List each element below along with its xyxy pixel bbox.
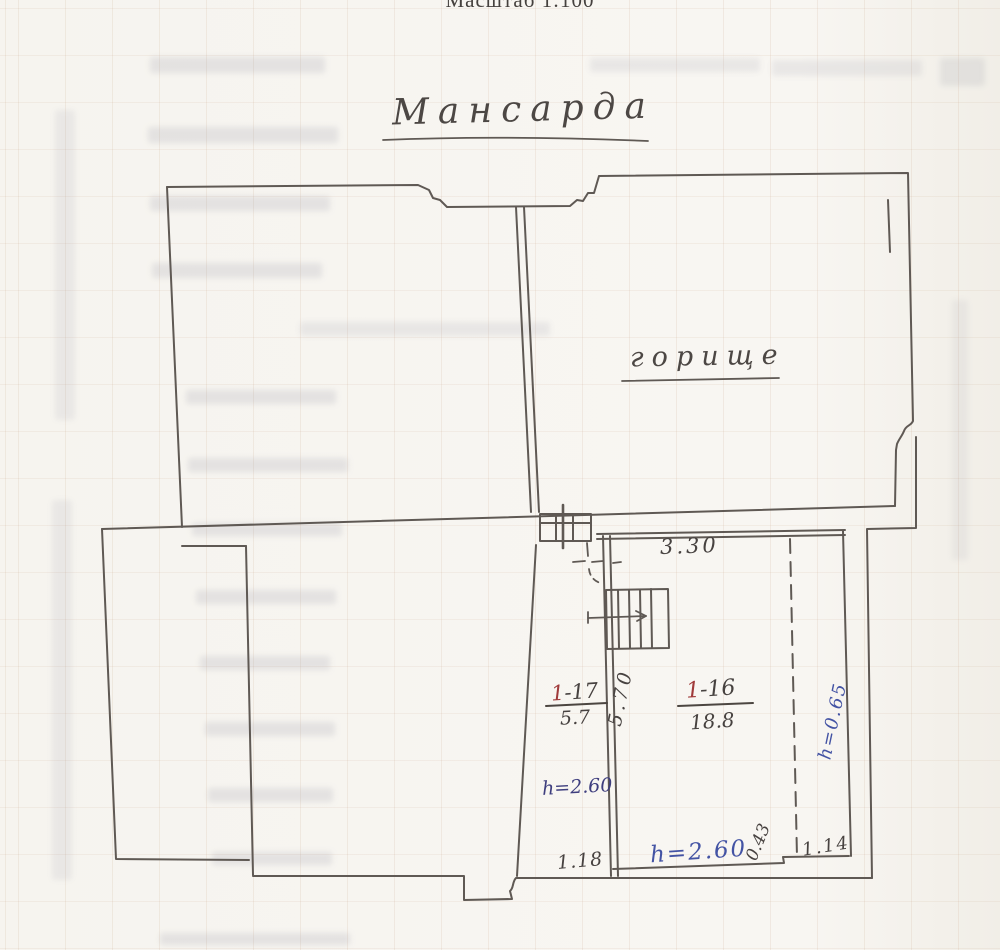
attic-room-label: горище: [630, 342, 786, 372]
floorplan-drawing: [0, 0, 1000, 950]
dashed-partition: [790, 539, 797, 857]
room-17-number: 1-17: [550, 680, 599, 704]
height-note-corridor: h=2.60: [542, 776, 613, 799]
room-17-number-rest: -17: [564, 678, 599, 704]
room-16-number: 1-16: [685, 677, 736, 702]
building-outline: [102, 173, 913, 529]
dim-door-width: 1.18: [556, 850, 604, 873]
central-wall: [516, 207, 539, 512]
annex-walls: [102, 529, 253, 875]
outer-lower-walls: [253, 437, 916, 900]
dashed-opening: [573, 543, 621, 583]
dim-top-width: 3.30: [660, 535, 719, 558]
stairs: [606, 589, 669, 649]
room-17-area: 5.7: [560, 708, 591, 729]
room-16-number-rest: -16: [699, 675, 736, 702]
scale-caption-text: Масштаб 1:100: [395, 0, 645, 13]
page-title: Мансарда: [392, 89, 656, 132]
corridor-walls: [517, 536, 618, 876]
scale-caption: Масштаб 1:100: [395, 0, 645, 13]
wall-tick: [888, 200, 890, 252]
scanned-floorplan-page: Масштаб 1:100 Мансарда горище 3.30 1-17 …: [0, 0, 1000, 950]
stair-direction-arrow: [588, 611, 646, 623]
room-16-area: 18.8: [689, 709, 735, 732]
window-hatch: [540, 505, 591, 548]
